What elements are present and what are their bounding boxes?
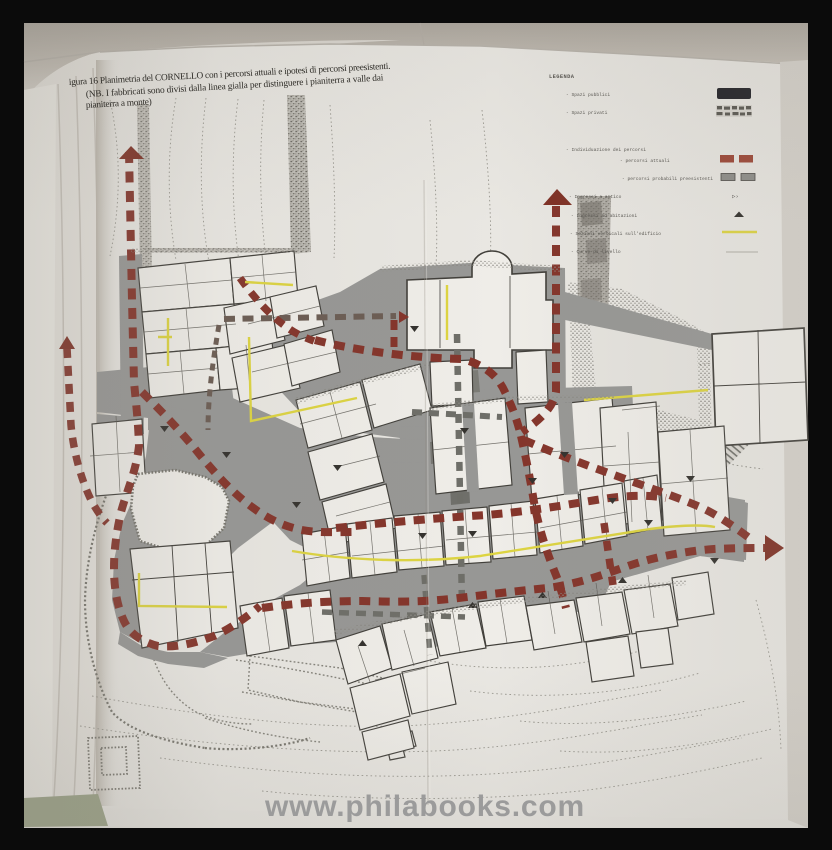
svg-text:www.philabooks.com: www.philabooks.com: [264, 790, 585, 823]
